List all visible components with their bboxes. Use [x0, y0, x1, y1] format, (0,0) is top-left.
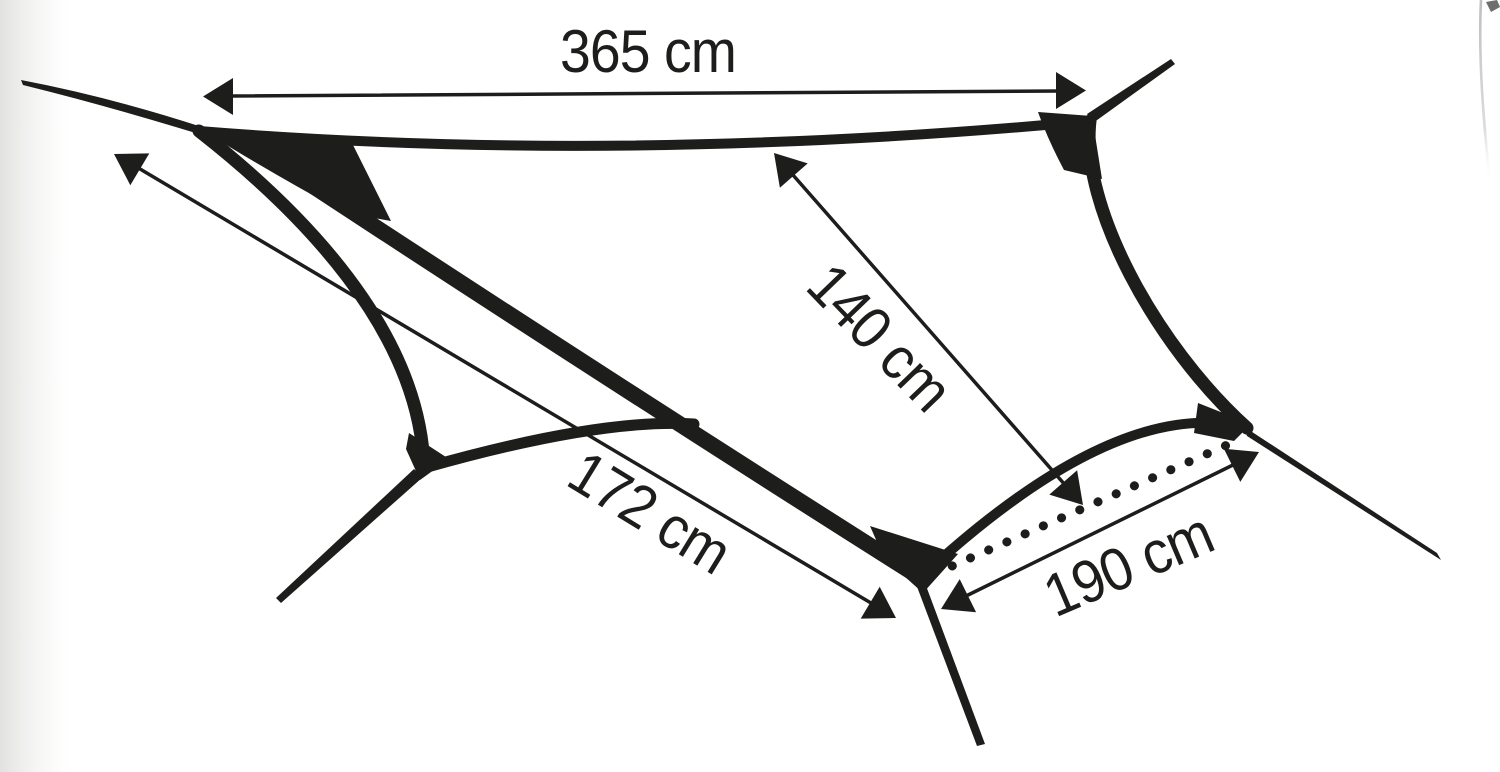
left-edge-shading [0, 0, 78, 772]
tarp-dimension-diagram: 365 cm 140 cm 172 cm 190 cm [0, 0, 1500, 772]
diagram-canvas: 365 cm 140 cm 172 cm 190 cm [0, 0, 1500, 772]
dimension-label-ridge: 365 cm [560, 18, 736, 85]
paper-background [0, 0, 1500, 772]
